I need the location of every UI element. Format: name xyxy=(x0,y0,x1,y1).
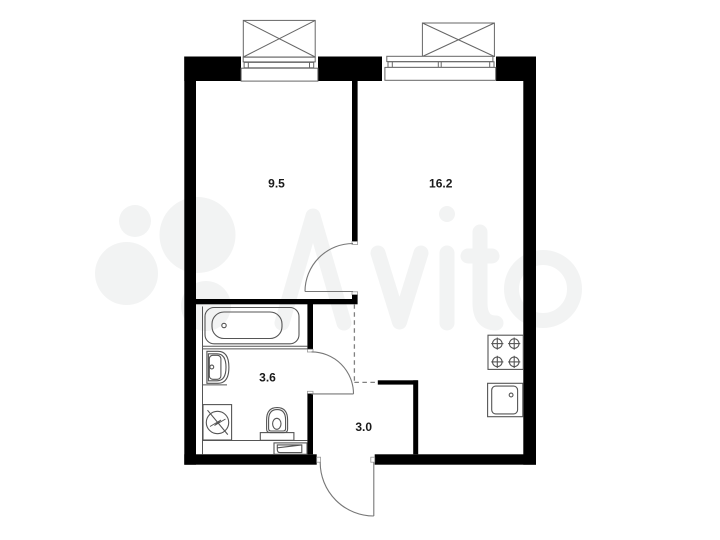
svg-text:16.2: 16.2 xyxy=(429,177,453,191)
svg-text:3.6: 3.6 xyxy=(259,370,276,384)
svg-text:3.0: 3.0 xyxy=(355,420,372,434)
svg-text:9.5: 9.5 xyxy=(268,177,285,191)
